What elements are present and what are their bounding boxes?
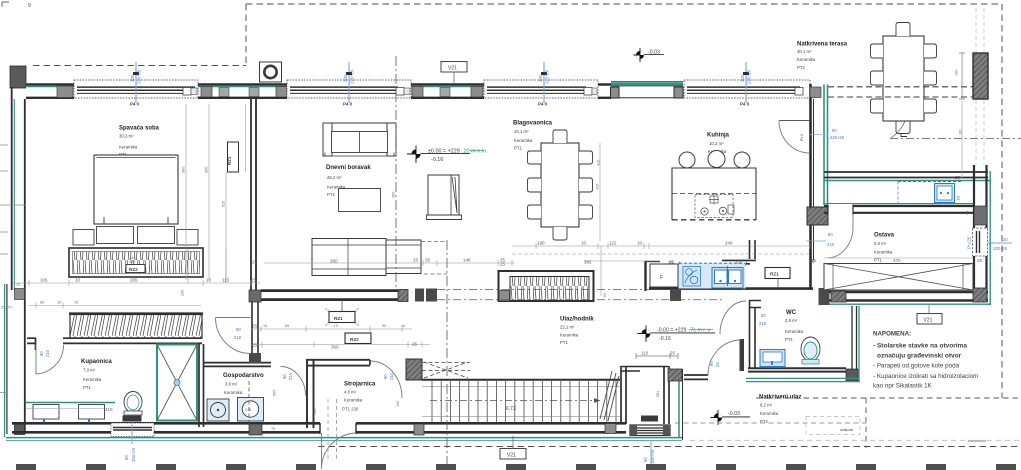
svg-text:-0,16: -0,16 [431, 157, 443, 163]
svg-text:-0.03: -0.03 [728, 411, 740, 417]
svg-text:Keramika: Keramika [344, 398, 363, 403]
svg-text:25, 70: 25, 70 [1, 306, 12, 310]
svg-text:240: 240 [245, 408, 251, 412]
svg-text:100+25: 100+25 [131, 447, 136, 462]
svg-text:225+25: 225+25 [747, 69, 752, 84]
svg-text:382: 382 [584, 260, 592, 265]
svg-text:Pv 60: Pv 60 [643, 417, 654, 422]
svg-text:5,0 m²: 5,0 m² [874, 241, 887, 246]
svg-text:Keramika: Keramika [514, 138, 533, 143]
svg-text:122: 122 [609, 241, 617, 246]
svg-text:90: 90 [709, 361, 714, 366]
svg-text:Pv 125: Pv 125 [124, 417, 137, 422]
svg-text:22,1 m²: 22,1 m² [560, 325, 575, 330]
svg-text:4,0 m²: 4,0 m² [344, 390, 357, 395]
svg-text:Kuhinja: Kuhinja [707, 133, 730, 139]
svg-text:90: 90 [761, 313, 766, 318]
svg-text:25: 25 [251, 278, 257, 283]
svg-text:PT2: PT2 [797, 65, 805, 70]
svg-text:10: 10 [581, 241, 587, 246]
svg-text:±0.00 = +229: ±0.00 = +229 [428, 149, 460, 155]
svg-text:100: 100 [313, 409, 317, 415]
svg-text:Spavaća soba: Spavaća soba [119, 126, 160, 132]
svg-text:240: 240 [725, 241, 733, 246]
svg-text:218: 218 [234, 335, 242, 340]
svg-text:Keramika: Keramika [760, 411, 779, 416]
svg-text:460: 460 [392, 192, 396, 198]
svg-text:410: 410 [105, 407, 113, 412]
svg-text:370: 370 [893, 258, 901, 263]
svg-text:105: 105 [40, 278, 48, 283]
svg-text:označuju građevinski otvor: označuju građevinski otvor [877, 353, 962, 360]
svg-text:P4 0: P4 0 [343, 102, 353, 107]
svg-text:-0.03: -0.03 [648, 50, 660, 56]
svg-text:565: 565 [273, 390, 277, 396]
svg-text:RZ1: RZ1 [770, 272, 779, 277]
svg-text:RZ1: RZ1 [227, 156, 232, 165]
svg-text:190: 190 [537, 241, 545, 246]
svg-text:110: 110 [641, 351, 649, 356]
svg-text:10,1 m²: 10,1 m² [514, 129, 529, 134]
svg-text:80: 80 [832, 128, 837, 133]
svg-text:Blagovaonica: Blagovaonica [513, 121, 553, 127]
svg-text:RZ1: RZ1 [334, 316, 343, 321]
svg-text:25: 25 [670, 351, 676, 356]
svg-text:225+25: 225+25 [830, 135, 845, 140]
svg-text:265: 265 [130, 278, 138, 283]
svg-text:Keramika: Keramika [797, 57, 816, 62]
svg-text:-0.16: -0.16 [659, 336, 671, 342]
svg-text:Ostava: Ostava [874, 233, 895, 239]
svg-text:70: 70 [271, 427, 275, 431]
svg-text:Natkriveni ulaz: Natkriveni ulaz [759, 395, 801, 401]
svg-text:25: 25 [965, 211, 969, 215]
svg-text:NAPOMENA:: NAPOMENA: [873, 331, 911, 338]
svg-text:350: 350 [205, 167, 209, 173]
svg-text:6,2 m²: 6,2 m² [760, 403, 773, 408]
svg-text:PT1: PT1 [785, 337, 793, 342]
svg-text:V21: V21 [448, 66, 457, 72]
svg-text:V21: V21 [507, 453, 516, 459]
svg-text:25: 25 [811, 258, 817, 263]
svg-text:225+25: 225+25 [350, 69, 355, 84]
svg-text:80: 80 [40, 301, 44, 305]
svg-text:25: 25 [252, 324, 258, 329]
svg-text:Strojarnica: Strojarnica [344, 382, 376, 388]
svg-text:15: 15 [57, 301, 61, 305]
svg-text:- Parapeti od gotove kote poda: - Parapeti od gotove kote poda [873, 363, 960, 370]
svg-text:.20 m n.m.: .20 m n.m. [462, 149, 487, 155]
svg-text:Keramika: Keramika [560, 333, 579, 338]
svg-text:RZ2: RZ2 [350, 337, 359, 342]
svg-text:90: 90 [236, 327, 241, 332]
svg-text:P+125: P+125 [967, 236, 972, 249]
svg-text:Pv 0: Pv 0 [800, 134, 804, 141]
svg-text:- Kupaonice izolirati sa hidro: - Kupaonice izolirati sa hidroizolaciom [873, 373, 978, 380]
svg-text:25: 25 [715, 362, 720, 367]
svg-text:561: 561 [656, 391, 660, 397]
svg-text:90: 90 [124, 455, 129, 460]
svg-text:zrakom: zrakom [840, 427, 854, 432]
svg-text:10: 10 [401, 324, 405, 328]
svg-text:210: 210 [389, 372, 394, 380]
svg-text:PT1 230: PT1 230 [342, 407, 359, 412]
svg-text:F: F [660, 275, 663, 281]
svg-text:310: 310 [735, 260, 743, 265]
svg-text:390: 390 [182, 167, 186, 173]
svg-text:2,9 m²: 2,9 m² [785, 318, 798, 323]
svg-text:100: 100 [955, 70, 959, 76]
svg-text:P4 0: P4 0 [538, 102, 548, 107]
svg-text:210: 210 [827, 242, 835, 247]
svg-text:Keramika: Keramika [874, 250, 893, 255]
svg-text:520: 520 [222, 201, 226, 207]
svg-text:Ulaz/hodnik: Ulaz/hodnik [560, 317, 594, 323]
svg-text:300: 300 [130, 74, 135, 82]
svg-text:Keramika: Keramika [83, 377, 102, 382]
svg-text:25: 25 [977, 258, 983, 263]
svg-text:90: 90 [39, 351, 44, 356]
svg-text:210: 210 [288, 372, 293, 380]
svg-text:10: 10 [74, 301, 78, 305]
svg-text:Natkrivena terasa: Natkrivena terasa [797, 42, 848, 48]
svg-text:20: 20 [1003, 237, 1008, 242]
svg-text:113: 113 [222, 278, 230, 283]
svg-text:3,6 m²: 3,6 m² [225, 382, 238, 387]
svg-text:25: 25 [500, 258, 506, 263]
svg-text:25: 25 [413, 258, 419, 263]
svg-text:25: 25 [412, 342, 418, 347]
svg-text:PT1: PT1 [514, 146, 522, 151]
svg-text:25: 25 [669, 260, 675, 265]
svg-text:225+25: 225+25 [545, 69, 550, 84]
svg-text:25: 25 [955, 175, 961, 180]
svg-text:80: 80 [828, 232, 833, 237]
svg-text:300: 300 [343, 74, 348, 82]
svg-text:Gospodarstvo: Gospodarstvo [223, 373, 264, 379]
svg-text:P4 0: P4 0 [130, 102, 140, 107]
svg-text:25: 25 [252, 343, 258, 348]
svg-text:PT1: PT1 [327, 192, 335, 197]
svg-text:80: 80 [285, 324, 289, 328]
svg-text:10: 10 [637, 241, 643, 246]
svg-text:Keramika: Keramika [224, 390, 243, 395]
svg-text:161: 161 [959, 129, 963, 135]
svg-text:300: 300 [538, 74, 543, 82]
svg-text:Keramika: Keramika [785, 329, 804, 334]
svg-text:360: 360 [331, 345, 339, 350]
svg-text:PT1: PT1 [560, 340, 568, 345]
svg-text:148: 148 [463, 258, 471, 263]
svg-text:90: 90 [643, 457, 648, 462]
svg-text:63: 63 [957, 196, 961, 200]
svg-text:P4 0: P4 0 [740, 102, 750, 107]
svg-text:90: 90 [603, 293, 607, 297]
svg-text:225+25: 225+25 [137, 69, 142, 84]
svg-text:- Stolarske stavke na otvorima: - Stolarske stavke na otvorima [873, 343, 967, 350]
svg-text:6.73: 6.73 [506, 406, 516, 412]
svg-text:200: 200 [181, 290, 185, 296]
svg-text:210: 210 [45, 349, 50, 357]
svg-text:1 0: 1 0 [333, 324, 338, 328]
svg-text:PT1: PT1 [83, 385, 91, 390]
svg-text:90: 90 [383, 374, 388, 379]
svg-text:416: 416 [596, 184, 600, 190]
svg-text:10: 10 [75, 278, 81, 283]
svg-text:90: 90 [382, 324, 386, 328]
svg-text:35: 35 [425, 258, 431, 263]
svg-text:WC: WC [786, 310, 797, 316]
svg-text:100+25: 100+25 [993, 246, 1008, 251]
svg-text:10: 10 [206, 278, 212, 283]
svg-text:360: 360 [330, 259, 338, 264]
svg-text:.7L m r. v: .7L m r. v [689, 328, 711, 334]
svg-text:RZ2: RZ2 [129, 267, 138, 272]
svg-text:Kupaonica: Kupaonica [81, 359, 112, 365]
svg-text:V21: V21 [924, 318, 933, 324]
svg-text:9: 9 [28, 3, 31, 9]
svg-text:-0.00 = +229: -0.00 = +229 [657, 328, 687, 334]
svg-text:40,1 m²: 40,1 m² [797, 49, 812, 54]
svg-text:kao npr Sikalastik 1K: kao npr Sikalastik 1K [873, 383, 933, 390]
svg-text:100+25: 100+25 [650, 449, 655, 464]
svg-text:28,2 m²: 28,2 m² [327, 175, 342, 180]
svg-text:218: 218 [759, 321, 767, 326]
svg-text:Dnevni boravak: Dnevni boravak [326, 165, 371, 171]
svg-text:25: 25 [252, 260, 258, 265]
svg-text:Keramika: Keramika [119, 145, 138, 150]
svg-text:30,3 m²: 30,3 m² [119, 134, 134, 139]
svg-text:10,2 m²: 10,2 m² [709, 141, 724, 146]
svg-text:404: 404 [129, 260, 135, 264]
svg-text:90: 90 [282, 374, 287, 379]
svg-text:100: 100 [396, 401, 400, 407]
svg-text:300: 300 [740, 74, 745, 82]
svg-text:10: 10 [263, 324, 267, 328]
svg-text:416: 416 [597, 160, 601, 166]
svg-text:7,0 m²: 7,0 m² [83, 368, 96, 373]
